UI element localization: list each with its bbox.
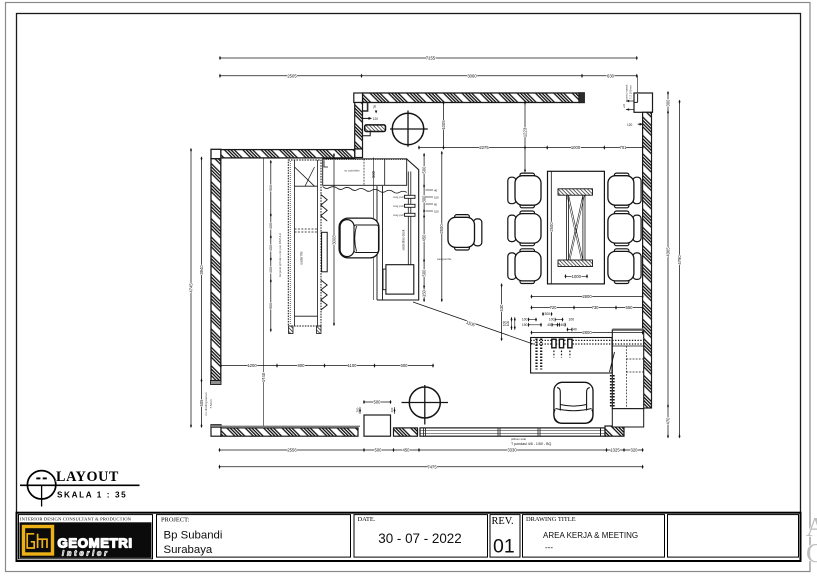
svg-text:Surabaya: Surabaya (164, 544, 213, 556)
svg-text:2500: 2500 (439, 224, 444, 234)
svg-text:no activities: no activities (344, 169, 360, 173)
svg-text:3330: 3330 (507, 448, 517, 453)
svg-text:2800: 2800 (582, 294, 592, 299)
svg-text:600: 600 (401, 363, 409, 368)
svg-text:underline desk: underline desk (402, 229, 406, 250)
svg-text:under file: under file (300, 251, 304, 264)
svg-text:190: 190 (522, 323, 528, 327)
svg-text:100: 100 (434, 196, 439, 200)
svg-text:SKALA 1 : 35: SKALA 1 : 35 (57, 490, 127, 499)
svg-text:400: 400 (269, 223, 273, 229)
svg-text:AREA KERJA & MEETING: AREA KERJA & MEETING (543, 531, 638, 540)
svg-text:320: 320 (631, 448, 639, 453)
svg-text:PROJECT:: PROJECT: (161, 516, 190, 523)
svg-text:7.2 100mm: 7.2 100mm (629, 84, 633, 99)
svg-text:630: 630 (499, 304, 504, 312)
svg-text:2275: 2275 (479, 145, 489, 150)
svg-text:500: 500 (374, 400, 382, 405)
svg-text:45: 45 (547, 323, 551, 327)
svg-text:T pondasi 4/6 - 1/50 - BQ: T pondasi 4/6 - 1/50 - BQ (511, 442, 551, 446)
svg-text:630: 630 (607, 73, 615, 78)
svg-text:G: G (806, 538, 817, 568)
svg-text:mag pull: mag pull (393, 195, 404, 199)
svg-text:3060: 3060 (467, 73, 477, 78)
svg-text:INTERIOR DESIGN CONSULTANT & P: INTERIOR DESIGN CONSULTANT & PRODUCTION (20, 517, 132, 522)
svg-text:100: 100 (522, 318, 528, 322)
svg-text:500: 500 (422, 269, 427, 277)
svg-text:3940: 3940 (199, 265, 204, 275)
svg-text:701: 701 (620, 145, 628, 150)
svg-text:7.5mm: 7.5mm (209, 399, 213, 409)
svg-text:REV.: REV. (492, 516, 514, 527)
svg-text:500: 500 (422, 166, 427, 174)
svg-text:no dinding kanan: no dinding kanan (204, 392, 208, 415)
svg-text:2556: 2556 (287, 448, 297, 453)
svg-text:+20: +20 (622, 103, 626, 108)
svg-text:1000: 1000 (571, 145, 581, 150)
svg-text:4365: 4365 (665, 247, 670, 257)
svg-text:1740: 1740 (261, 372, 266, 382)
svg-text:2800: 2800 (582, 330, 592, 335)
svg-text:100: 100 (506, 321, 510, 327)
svg-text:1200: 1200 (247, 363, 257, 368)
svg-text:40: 40 (573, 328, 577, 332)
svg-text:1000: 1000 (572, 274, 582, 279)
svg-text:30 - 07 - 2022: 30 - 07 - 2022 (378, 531, 461, 546)
svg-text:1005: 1005 (441, 120, 446, 130)
svg-text:DRAWING TITLE: DRAWING TITLE (526, 516, 576, 523)
svg-text:100: 100 (569, 318, 575, 322)
svg-text:mag pull: mag pull (393, 213, 404, 217)
svg-text:Bp Subandi: Bp Subandi (164, 530, 223, 542)
svg-text:100: 100 (434, 210, 439, 214)
svg-text:2500: 2500 (549, 222, 554, 232)
svg-text:730: 730 (592, 305, 600, 310)
svg-text:7155: 7155 (426, 56, 436, 61)
svg-text:450: 450 (422, 234, 427, 242)
svg-text:300: 300 (544, 312, 550, 316)
svg-text:mag pull: mag pull (393, 204, 404, 208)
svg-text:60: 60 (434, 203, 438, 207)
svg-text:DATE.: DATE. (358, 516, 376, 523)
svg-text:150: 150 (422, 289, 427, 297)
svg-text:200: 200 (390, 407, 394, 412)
svg-text:800: 800 (298, 363, 306, 368)
svg-text:400: 400 (269, 245, 273, 251)
svg-text:900: 900 (269, 185, 273, 191)
svg-text:---: --- (545, 543, 553, 552)
svg-text:76: 76 (373, 105, 377, 109)
svg-text:1223: 1223 (522, 127, 527, 137)
svg-text:berjarak grill dan unik pas RA: berjarak grill dan unik pas RAPULA (278, 233, 282, 277)
svg-text:7475: 7475 (427, 464, 437, 469)
svg-text:3008: 3008 (331, 235, 336, 245)
svg-text:720: 720 (550, 305, 558, 310)
svg-text:550: 550 (626, 305, 634, 310)
svg-text:120: 120 (373, 117, 379, 121)
svg-text:4790: 4790 (677, 255, 682, 265)
svg-text:Interior: Interior (62, 549, 110, 558)
svg-text:470: 470 (665, 417, 670, 425)
svg-text:4745: 4745 (188, 283, 193, 293)
svg-text:300: 300 (422, 195, 427, 203)
svg-text:2505: 2505 (287, 73, 297, 78)
svg-text:1100: 1100 (347, 363, 357, 368)
svg-text:1325: 1325 (610, 448, 620, 453)
svg-text:40: 40 (560, 323, 564, 327)
svg-text:605: 605 (199, 399, 204, 407)
svg-text:01: 01 (493, 536, 515, 558)
svg-text:300: 300 (665, 99, 670, 107)
svg-text:pilihan stub: pilihan stub (511, 437, 527, 441)
svg-text:40: 40 (434, 189, 438, 193)
svg-text:100: 100 (549, 318, 555, 322)
svg-text:sampai file: sampai file (437, 257, 452, 261)
svg-text:500: 500 (375, 448, 383, 453)
svg-text:450: 450 (403, 448, 411, 453)
svg-text:120: 120 (627, 123, 633, 127)
svg-text:200: 200 (356, 407, 360, 412)
svg-text:400: 400 (269, 267, 273, 273)
svg-text:900: 900 (269, 303, 273, 309)
svg-text:LAYOUT: LAYOUT (56, 469, 119, 485)
